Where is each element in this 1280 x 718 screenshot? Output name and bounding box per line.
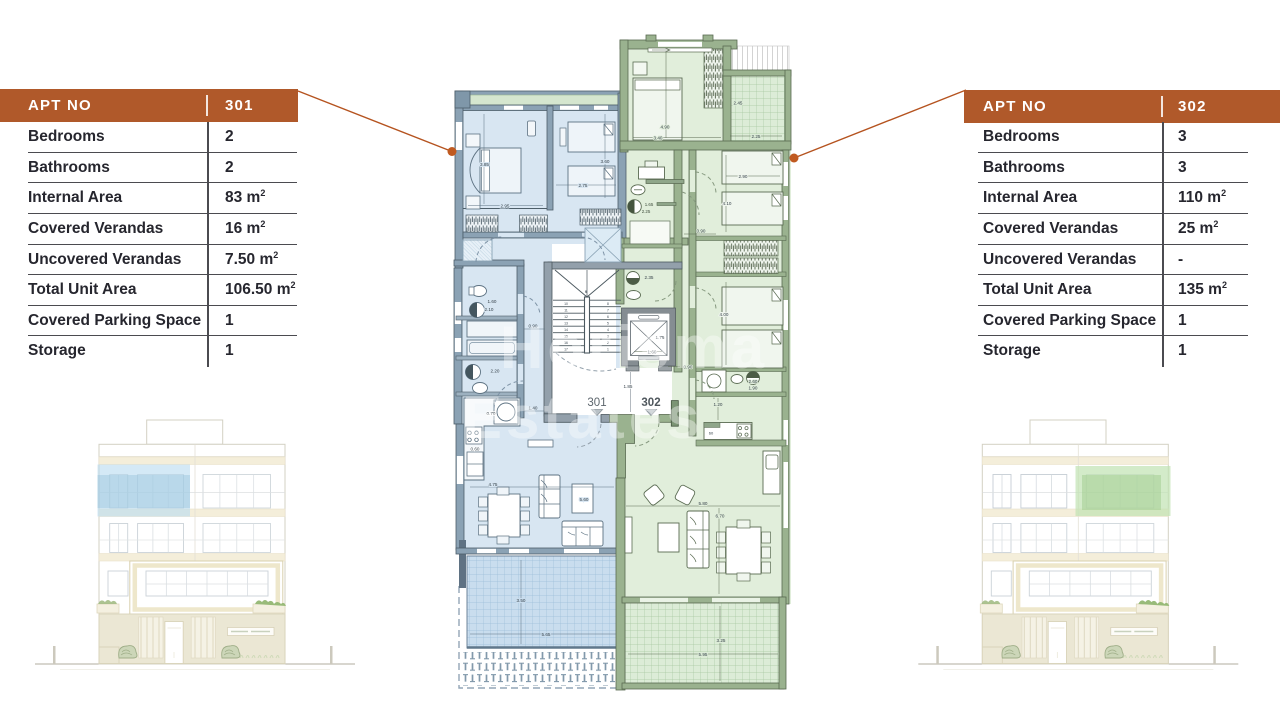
svg-text:1.65: 1.65 xyxy=(645,202,654,207)
svg-text:7: 7 xyxy=(607,309,609,313)
svg-text:Horisma: Horisma xyxy=(500,314,768,381)
svg-text:2.10: 2.10 xyxy=(485,307,494,312)
svg-text:60: 60 xyxy=(709,431,714,436)
svg-text:4.10: 4.10 xyxy=(723,201,732,206)
svg-text:2.25: 2.25 xyxy=(642,209,651,214)
svg-text:5.80: 5.80 xyxy=(699,501,708,506)
svg-text:2.45: 2.45 xyxy=(734,101,743,106)
svg-text:2.25: 2.25 xyxy=(752,134,761,139)
svg-text:1.60: 1.60 xyxy=(488,299,497,304)
svg-text:2.90: 2.90 xyxy=(739,174,748,179)
svg-text:3.25: 3.25 xyxy=(717,638,726,643)
svg-text:10: 10 xyxy=(564,302,568,306)
svg-text:Estates: Estates xyxy=(462,384,703,451)
svg-text:1.20: 1.20 xyxy=(714,402,723,407)
svg-text:1.90: 1.90 xyxy=(749,385,758,390)
svg-text:6.70: 6.70 xyxy=(716,514,725,519)
svg-text:3.40: 3.40 xyxy=(654,135,663,140)
svg-text:3.50: 3.50 xyxy=(517,598,526,603)
svg-text:11: 11 xyxy=(564,309,568,313)
svg-text:5.95: 5.95 xyxy=(699,652,708,657)
svg-text:2.95: 2.95 xyxy=(501,203,510,208)
svg-text:2.20: 2.20 xyxy=(491,369,500,374)
svg-text:4.90: 4.90 xyxy=(661,125,670,130)
svg-text:3.60: 3.60 xyxy=(601,159,610,164)
svg-text:5.60: 5.60 xyxy=(580,497,589,502)
svg-text:3.85: 3.85 xyxy=(480,162,489,167)
svg-text:8: 8 xyxy=(607,302,609,306)
svg-text:5.65: 5.65 xyxy=(542,632,551,637)
svg-text:0.90: 0.90 xyxy=(697,228,706,233)
svg-text:4.75: 4.75 xyxy=(489,482,498,487)
svg-text:2.75: 2.75 xyxy=(579,183,588,188)
svg-text:2.35: 2.35 xyxy=(645,275,654,280)
